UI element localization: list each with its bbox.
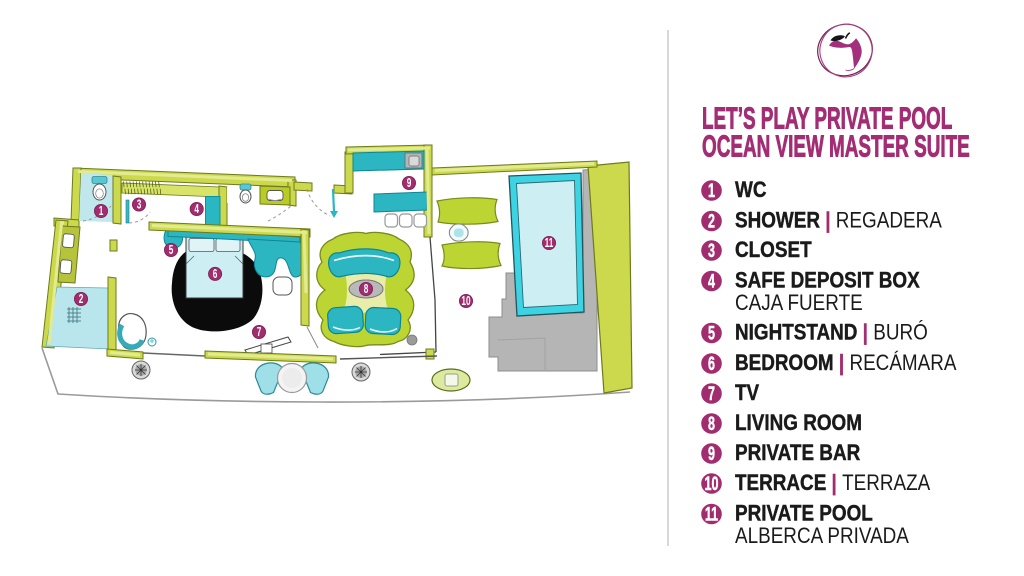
svg-text:5: 5 <box>169 243 174 257</box>
svg-text:11: 11 <box>545 236 554 250</box>
svg-text:PRIVATE POOL: PRIVATE POOL <box>735 501 873 526</box>
svg-text:4: 4 <box>708 271 715 292</box>
svg-text:TERRACE | TERRAZA: TERRACE | TERRAZA <box>735 471 930 496</box>
svg-text:SHOWER | REGADERA: SHOWER | REGADERA <box>735 208 942 233</box>
svg-text:10: 10 <box>705 473 719 494</box>
svg-text:7: 7 <box>708 383 715 404</box>
svg-text:2: 2 <box>79 292 84 306</box>
svg-text:WC: WC <box>735 178 766 203</box>
svg-text:10: 10 <box>461 294 470 308</box>
svg-text:9: 9 <box>708 443 715 464</box>
svg-text:9: 9 <box>407 176 412 190</box>
svg-text:4: 4 <box>194 202 199 216</box>
svg-text:8: 8 <box>364 282 369 296</box>
svg-text:1: 1 <box>99 204 104 218</box>
svg-text:BEDROOM | RECÁMARA: BEDROOM | RECÁMARA <box>735 351 957 376</box>
svg-text:8: 8 <box>708 413 715 434</box>
svg-text:TV: TV <box>735 381 759 406</box>
svg-text:2: 2 <box>708 211 715 232</box>
svg-text:11: 11 <box>705 504 718 525</box>
svg-text:CAJA FUERTE: CAJA FUERTE <box>735 291 863 316</box>
svg-text:5: 5 <box>708 323 715 344</box>
svg-text:ALBERCA PRIVADA: ALBERCA PRIVADA <box>735 524 909 549</box>
svg-text:1: 1 <box>708 180 715 201</box>
svg-text:6: 6 <box>213 267 218 281</box>
svg-text:PRIVATE BAR: PRIVATE BAR <box>735 441 860 466</box>
svg-text:3: 3 <box>137 198 142 212</box>
svg-text:6: 6 <box>708 353 715 374</box>
svg-text:OCEAN VIEW MASTER SUITE: OCEAN VIEW MASTER SUITE <box>702 130 970 164</box>
svg-text:LIVING ROOM: LIVING ROOM <box>735 411 862 436</box>
svg-text:CLOSET: CLOSET <box>735 238 812 263</box>
svg-text:7: 7 <box>257 325 262 339</box>
svg-text:SAFE DEPOSIT BOX: SAFE DEPOSIT BOX <box>735 268 920 293</box>
svg-text:3: 3 <box>708 240 715 261</box>
svg-text:NIGHTSTAND | BURÓ: NIGHTSTAND | BURÓ <box>735 320 928 345</box>
